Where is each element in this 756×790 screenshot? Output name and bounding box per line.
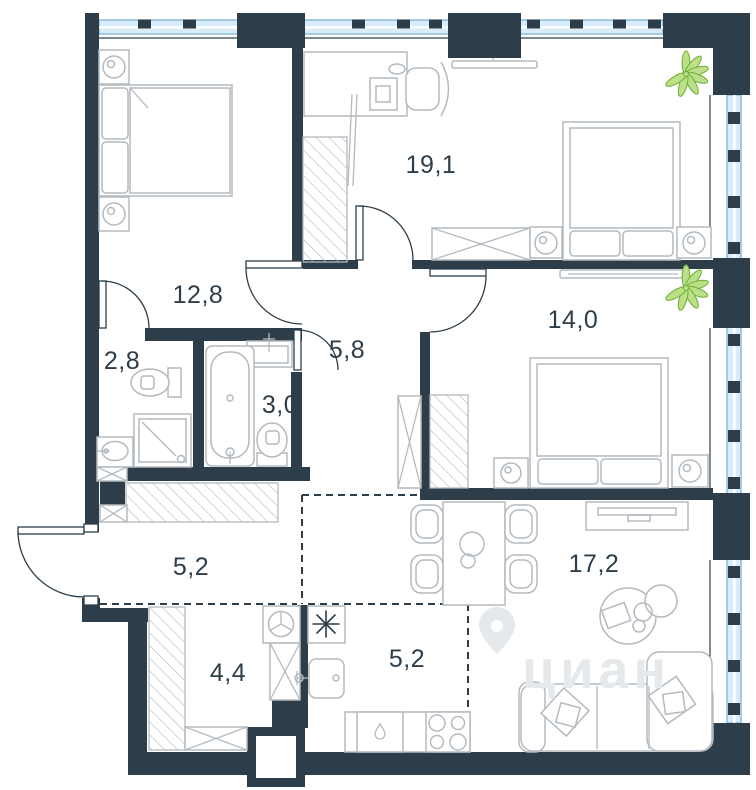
dishwasher-icon: [357, 712, 403, 752]
chair-icon: [411, 505, 443, 543]
room-label-4-4: 4,4: [210, 659, 246, 687]
floor-plan-page: циан 19,1 12,8 2,8 5,8 3,0 14,0 5,2 4,4 …: [0, 0, 756, 790]
toilet-icon: [257, 423, 287, 466]
room-label-5-2-kitchen: 5,2: [389, 645, 425, 673]
dining-table-icon: [443, 502, 505, 605]
nightstand-lamp-icon: [677, 227, 711, 258]
nightstand-lamp-icon: [530, 227, 562, 258]
chair-icon: [505, 505, 537, 543]
door-swing-bedroom-left: [246, 261, 302, 324]
door-swing-bedroom-top: [356, 206, 413, 260]
office-chair-icon: [406, 62, 449, 116]
wardrobe-hatched-14: [430, 395, 468, 488]
desk-computer-icon: [304, 52, 407, 116]
bathtub-icon: [206, 346, 254, 466]
nightstand-lamp-icon: [99, 197, 129, 231]
washbasin-icon: [97, 437, 133, 467]
window-band-right: [710, 95, 741, 723]
entrance-door-swing: [18, 524, 98, 605]
room-label-5-8: 5,8: [329, 336, 365, 364]
room-label-12-8: 12,8: [173, 281, 224, 309]
coffee-table-icon: [600, 585, 677, 644]
door-swing-bedroom-right: [430, 269, 486, 332]
room-label-2-8: 2,8: [104, 347, 140, 375]
door-swing-wc: [99, 281, 149, 328]
shower-cabin-icon: [134, 414, 191, 467]
double-bed-icon: [99, 85, 232, 196]
cabinet-x-icon: [270, 643, 300, 700]
room-label-19-1: 19,1: [406, 151, 457, 179]
nightstand-lamp-icon: [494, 458, 528, 488]
double-bed-icon: [563, 122, 680, 260]
tv-stand-icon: [586, 502, 688, 530]
room-label-3-0: 3,0: [262, 391, 298, 419]
double-bed-icon: [530, 358, 668, 488]
tv-icon: [560, 270, 686, 278]
washing-machine-icon: [263, 606, 300, 643]
wardrobe-hatched-corridor: [126, 483, 278, 522]
nightstand-lamp-icon: [99, 50, 129, 84]
wardrobe-x-icon: [432, 228, 530, 260]
chair-icon: [505, 555, 537, 593]
wardrobe-hatched-19: [303, 137, 347, 262]
tv-icon: [452, 58, 537, 68]
room-label-17-2: 17,2: [569, 550, 620, 578]
window-band-top: [99, 20, 663, 39]
cabinet-x-icon: [100, 505, 127, 522]
plant-icon: [664, 51, 709, 97]
stove-icon: [426, 712, 470, 752]
cabinet-x-icon: [97, 467, 127, 481]
vent-shaft: [247, 727, 305, 787]
room-label-5-2-corridor: 5,2: [173, 553, 209, 581]
room-label-14-0: 14,0: [548, 306, 599, 334]
chair-icon: [411, 555, 443, 593]
cabinet-x-icon: [185, 727, 247, 750]
nightstand-lamp-icon: [672, 455, 708, 487]
watermark-text: циан: [522, 640, 671, 700]
closet-x-hall: [398, 396, 421, 488]
hob-symbol-icon: [313, 611, 339, 637]
wardrobe-hatched-44: [149, 607, 185, 750]
floor-plan-svg: циан 19,1 12,8 2,8 5,8 3,0 14,0 5,2 4,4 …: [0, 0, 756, 790]
